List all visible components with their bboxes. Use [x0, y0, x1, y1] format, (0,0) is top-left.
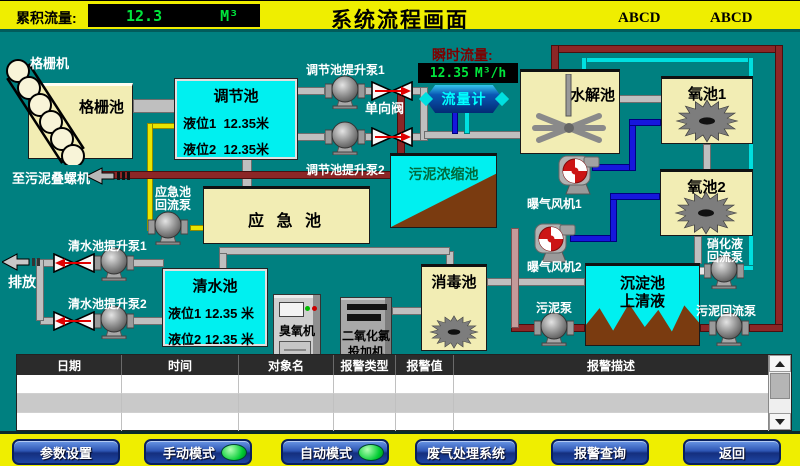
- alarm-table: 日期 时间 对象名 报警类型 报警值 报警描述: [16, 354, 792, 431]
- clear-pump2-label: 清水池提升泵2: [68, 295, 147, 312]
- scroll-up-button[interactable]: [769, 355, 791, 372]
- pipe: [629, 119, 661, 126]
- oxygen-pool2-tank: 氧池2: [660, 169, 753, 236]
- aeration-fan2-icon[interactable]: [532, 221, 576, 263]
- clear-level2: 液位2 12.35 米: [168, 329, 265, 348]
- sludge-pump-label: 污泥泵: [536, 299, 572, 316]
- discharge-arrow-icon: [2, 253, 42, 271]
- instant-flow-display: 12.35 M³/h: [418, 63, 518, 83]
- aeration-fan1-icon[interactable]: [556, 153, 600, 195]
- manual-mode-button[interactable]: 手动模式: [144, 439, 252, 465]
- col-object: 对象名: [239, 355, 334, 375]
- arrow-down-icon: [775, 419, 785, 425]
- grid-machine-label: 格栅机: [30, 53, 69, 72]
- slot-icon: [347, 314, 381, 321]
- nitration-return-label-2: 回流泵: [707, 248, 743, 265]
- oxygen-pool1-tank: 氧池1: [661, 76, 753, 144]
- pipe: [551, 45, 559, 71]
- regulation-pump2-label: 调节池提升泵2: [306, 161, 385, 178]
- pipe: [219, 253, 227, 269]
- pipe: [219, 247, 450, 255]
- bottom-button-bar: 参数设置 手动模式 自动模式 废气处理系统 报警查询 返回: [0, 431, 800, 466]
- ozone-screen: [279, 302, 304, 317]
- grid-machine-icon[interactable]: [4, 57, 88, 165]
- top-bar: 累积流量: 12.3 M³ 系统流程画面 ABCD ABCD: [0, 1, 800, 32]
- col-time: 时间: [122, 355, 239, 375]
- to-screw-arrow-icon: [86, 167, 132, 185]
- instant-flow-value: 12.35: [430, 66, 469, 81]
- badge-right: ABCD: [710, 10, 753, 27]
- aeration-fan2-label: 曝气风机2: [527, 258, 582, 275]
- emergency-pool-label: 应 急 池: [204, 207, 369, 231]
- pipe: [694, 236, 702, 264]
- pipe: [392, 307, 422, 315]
- table-row[interactable]: [17, 375, 791, 394]
- table-row[interactable]: [17, 394, 791, 413]
- gear-icon: [429, 315, 479, 349]
- regulation-pool-title: 调节池: [177, 85, 295, 106]
- pipe: [297, 87, 325, 95]
- emergency-return-pump-icon[interactable]: [148, 209, 188, 245]
- back-button[interactable]: 返回: [683, 439, 781, 465]
- regulation-level2: 液位2 12.35米: [183, 139, 295, 158]
- clear-pool-tank: 清水池 液位1 12.35 米 液位2 12.35 米: [163, 269, 267, 346]
- params-button[interactable]: 参数设置: [12, 439, 120, 465]
- pipe: [132, 259, 164, 267]
- disinfection-pool-label: 消毒池: [422, 271, 486, 292]
- discharge-label: 排放: [8, 272, 36, 292]
- regulation-pump1-icon[interactable]: [325, 73, 365, 109]
- cumulative-flow-label: 累积流量:: [16, 8, 77, 28]
- regulation-pump2-icon[interactable]: [325, 119, 365, 155]
- gear-icon: [675, 99, 739, 143]
- chlorine-doser-label-1: 二氧化氯: [341, 327, 391, 344]
- alarm-table-header: 日期 时间 对象名 报警类型 报警值 报警描述: [17, 355, 791, 375]
- red-indicator-dot: [312, 306, 317, 311]
- scroll-down-button[interactable]: [769, 413, 791, 430]
- pipe: [749, 324, 783, 332]
- sedimentation-tank: 沉淀池 上清液: [585, 263, 700, 346]
- waste-gas-system-button[interactable]: 废气处理系统: [415, 439, 517, 465]
- regulation-pool-tank: 调节池 液位1 12.35米 液位2 12.35米: [175, 79, 297, 159]
- check-valve2-icon[interactable]: [370, 127, 414, 147]
- cumulative-flow-unit: M³: [220, 7, 238, 25]
- instant-flow-label: 瞬时流量:: [432, 45, 493, 65]
- pipe: [629, 119, 636, 171]
- pipe: [610, 193, 617, 242]
- pipe: [133, 99, 175, 113]
- stirrer-icon: [529, 74, 609, 146]
- waste-gas-system-label: 废气处理系统: [427, 443, 505, 462]
- emergency-return-pump-label-2: 回流泵: [155, 196, 191, 213]
- pipe: [581, 57, 754, 63]
- pipe: [511, 228, 519, 328]
- green-indicator-dot: [305, 306, 310, 311]
- pipe: [775, 45, 783, 332]
- pipe: [132, 317, 164, 325]
- pipe: [618, 95, 662, 103]
- gear-icon: [674, 191, 738, 235]
- arrow-up-icon: [775, 361, 785, 367]
- pipe: [573, 324, 585, 332]
- to-sludge-screw-label: 至污泥叠螺机: [12, 168, 90, 187]
- auto-mode-button[interactable]: 自动模式: [281, 439, 389, 465]
- col-alarm-type: 报警类型: [334, 355, 396, 375]
- col-alarm-value: 报警值: [396, 355, 454, 375]
- emergency-pool-tank: 应 急 池: [203, 186, 370, 244]
- sludge-thickener-tank: 污泥浓缩池: [390, 153, 497, 228]
- sludge-return-pump-label: 污泥回流泵: [696, 302, 756, 319]
- page-title: 系统流程画面: [331, 4, 469, 34]
- pipe: [487, 278, 585, 286]
- pipe: [464, 110, 470, 134]
- clear-pool-title: 清水池: [165, 275, 265, 296]
- instant-flow-unit: M³/h: [475, 66, 506, 81]
- alarm-query-label: 报警查询: [574, 443, 626, 462]
- pipe: [190, 225, 204, 231]
- col-date: 日期: [17, 355, 122, 375]
- flow-meter[interactable]: 流量计: [425, 85, 503, 113]
- ozone-machine-label: 臭氧机: [274, 322, 320, 339]
- pipe: [551, 45, 783, 53]
- discharge-valve2-icon[interactable]: [52, 311, 96, 331]
- auto-mode-indicator: [358, 444, 384, 461]
- scada-process-screen: 累积流量: 12.3 M³ 系统流程画面 ABCD ABCD: [0, 0, 800, 466]
- disinfection-pool-tank: 消毒池: [421, 264, 487, 351]
- flow-meter-label: 流量计: [442, 89, 487, 109]
- discharge-valve1-icon[interactable]: [52, 253, 96, 273]
- manual-mode-label: 手动模式: [163, 443, 215, 462]
- pipe: [424, 131, 522, 139]
- clear-level1: 液位1 12.35 米: [168, 303, 265, 322]
- sludge-thickener-label: 污泥浓缩池: [391, 164, 496, 184]
- cumulative-flow-value: 12.3: [126, 7, 162, 25]
- scrollbar[interactable]: [768, 355, 791, 430]
- alarm-query-button[interactable]: 报警查询: [551, 439, 649, 465]
- table-row[interactable]: [17, 413, 791, 432]
- regulation-pump1-label: 调节池提升泵1: [306, 61, 385, 78]
- slot-icon: [347, 304, 387, 310]
- manual-mode-indicator: [221, 444, 247, 461]
- params-button-label: 参数设置: [40, 443, 92, 462]
- cumulative-flow-display: 12.3 M³: [88, 4, 260, 27]
- pipe: [452, 110, 458, 134]
- regulation-level1: 液位1 12.35米: [183, 113, 295, 132]
- pipe: [297, 133, 325, 141]
- pipe: [610, 193, 660, 200]
- sedimentation-label-2: 上清液: [586, 290, 699, 311]
- check-valve-label: 单向阀: [365, 98, 404, 117]
- back-button-label: 返回: [719, 443, 745, 462]
- hydrolysis-pool-tank: 水解池: [520, 69, 620, 154]
- pipe: [703, 144, 711, 170]
- badge-left: ABCD: [618, 10, 661, 27]
- aeration-fan1-label: 曝气风机1: [527, 195, 582, 212]
- auto-mode-label: 自动模式: [300, 443, 352, 462]
- col-alarm-desc: 报警描述: [454, 355, 769, 375]
- clear-pump1-label: 清水池提升泵1: [68, 237, 147, 254]
- scrollbar-thumb[interactable]: [770, 373, 790, 399]
